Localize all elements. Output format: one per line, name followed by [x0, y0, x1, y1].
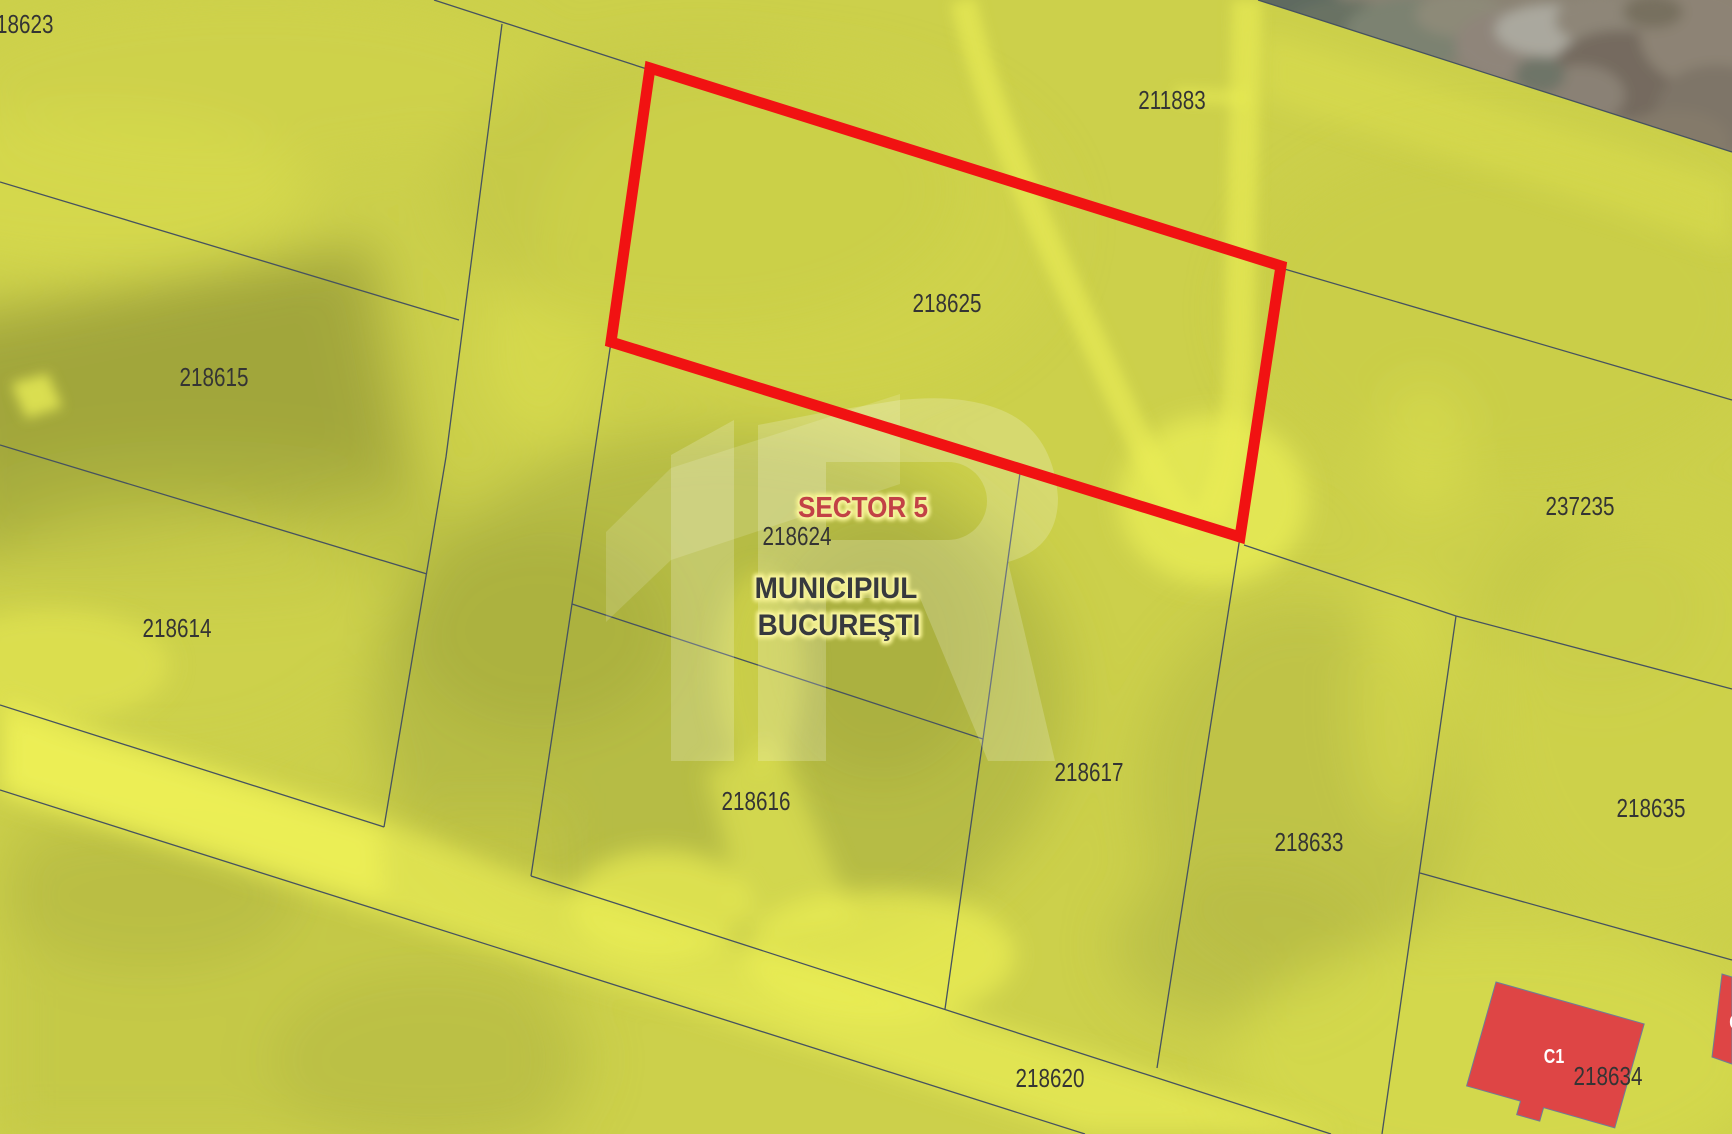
svg-text:218617: 218617: [1055, 758, 1124, 787]
svg-text:218635: 218635: [1617, 794, 1686, 823]
svg-text:218625: 218625: [913, 289, 982, 318]
svg-text:BUCUREŞTI: BUCUREŞTI: [758, 609, 921, 642]
svg-text:211883: 211883: [1138, 86, 1205, 115]
svg-text:218633: 218633: [1275, 828, 1344, 857]
svg-text:218620: 218620: [1016, 1064, 1085, 1093]
svg-text:218634: 218634: [1574, 1062, 1643, 1091]
svg-text:218624: 218624: [763, 522, 832, 551]
svg-text:218615: 218615: [180, 363, 249, 392]
svg-text:218623: 218623: [0, 10, 53, 39]
svg-text:237235: 237235: [1546, 492, 1615, 521]
svg-text:C1: C1: [1544, 1045, 1564, 1067]
svg-text:SECTOR 5: SECTOR 5: [798, 491, 928, 524]
svg-text:218616: 218616: [722, 787, 791, 816]
svg-text:MUNICIPIUL: MUNICIPIUL: [755, 572, 918, 605]
svg-text:218614: 218614: [143, 614, 212, 643]
